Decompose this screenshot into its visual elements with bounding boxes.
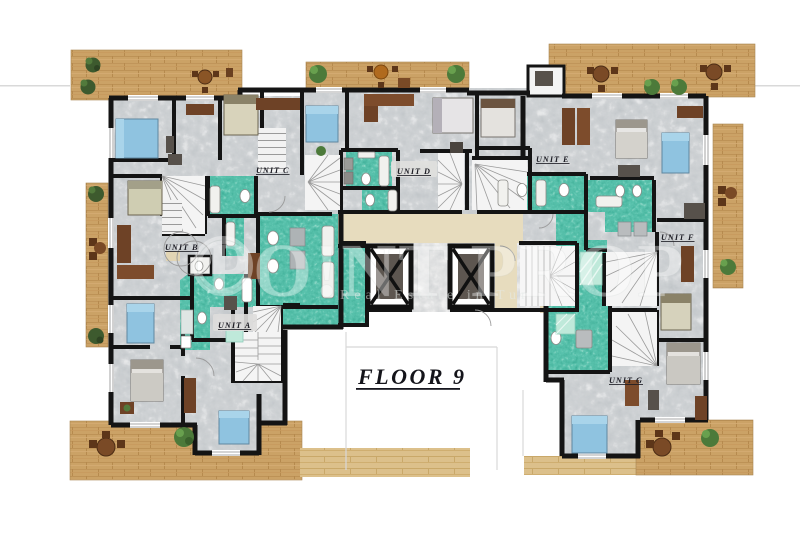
svg-text:UNIT G: UNIT G <box>609 376 643 385</box>
svg-text:UNIT E: UNIT E <box>536 155 570 164</box>
svg-text:Real Estate in Tur: Real Estate in Tur <box>340 288 531 303</box>
svg-text:P: P <box>206 228 251 310</box>
svg-text:FLOOR 9: FLOOR 9 <box>357 364 467 389</box>
svg-text:UNIT D: UNIT D <box>397 167 431 176</box>
svg-text:UNIT F: UNIT F <box>661 233 695 242</box>
svg-text:UNIT B: UNIT B <box>165 243 199 252</box>
svg-text:UNIT A: UNIT A <box>218 321 251 330</box>
svg-text:UNIT C: UNIT C <box>256 166 290 175</box>
